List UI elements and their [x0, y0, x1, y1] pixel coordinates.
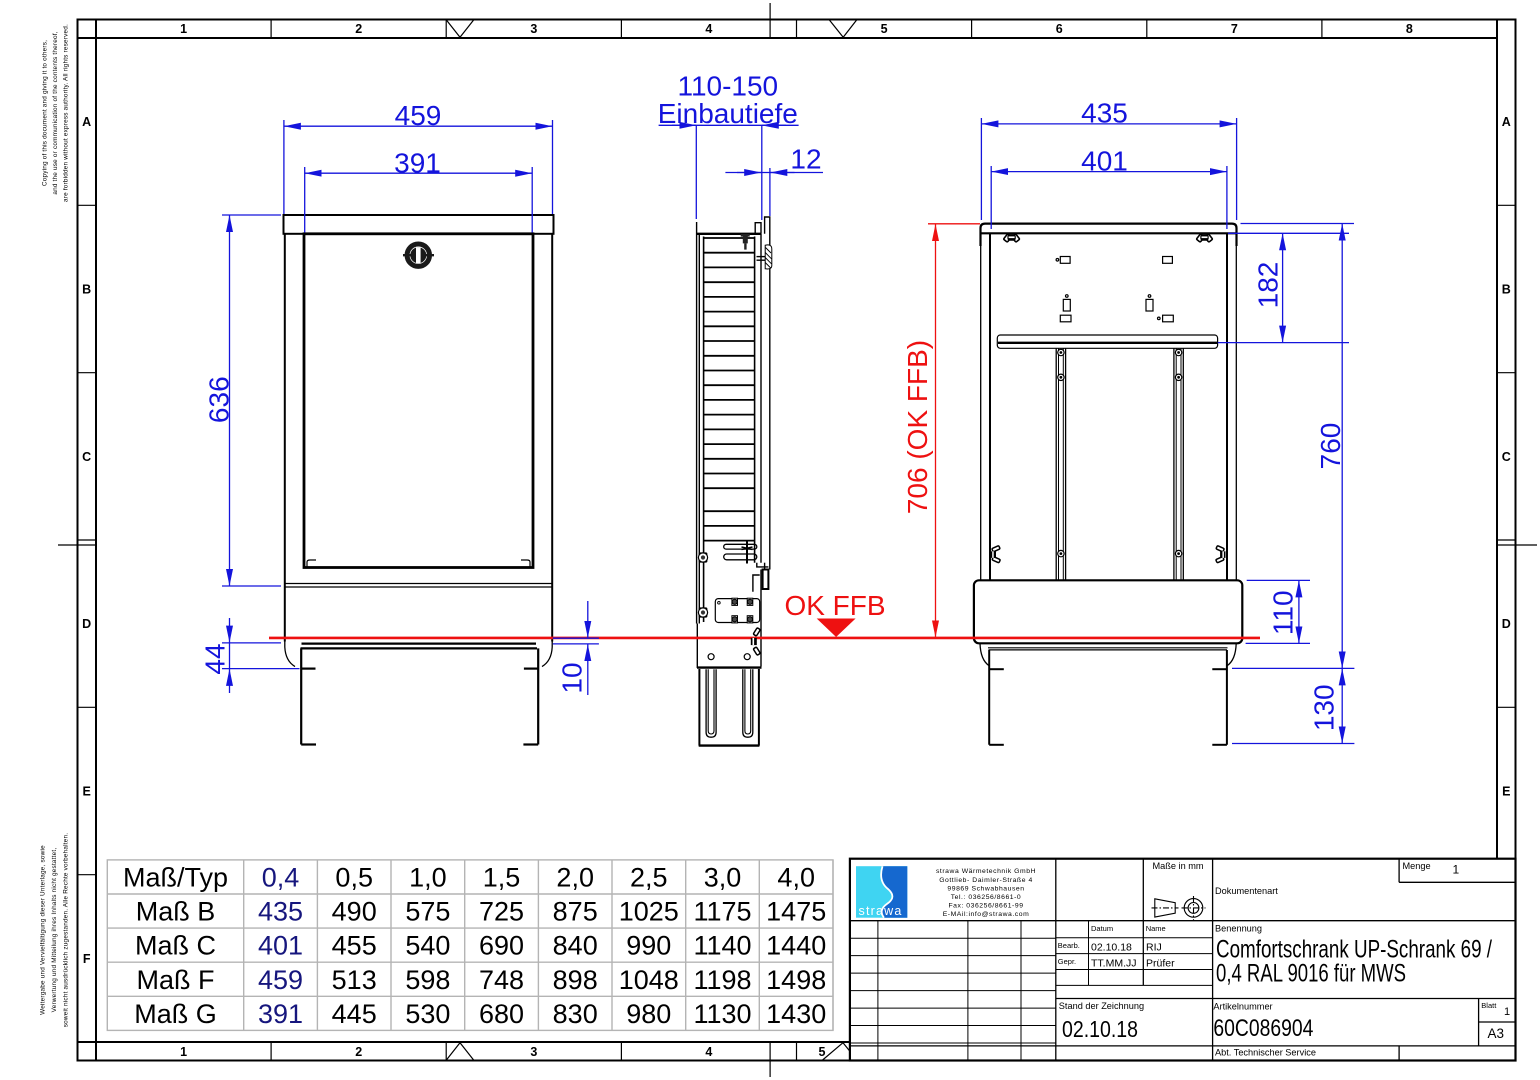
- svg-text:2,5: 2,5: [630, 863, 668, 893]
- svg-text:4: 4: [705, 22, 712, 36]
- svg-text:401: 401: [1081, 145, 1128, 176]
- svg-text:Artikelnummer: Artikelnummer: [1213, 1002, 1272, 1012]
- svg-text:1198: 1198: [693, 965, 751, 995]
- svg-text:980: 980: [626, 999, 671, 1029]
- svg-text:Fax: 036256/8661-99: Fax: 036256/8661-99: [948, 902, 1023, 909]
- svg-text:1475: 1475: [766, 897, 826, 927]
- svg-text:A: A: [1502, 115, 1511, 129]
- svg-text:130: 130: [1309, 684, 1340, 731]
- svg-text:Maß F: Maß F: [137, 965, 215, 995]
- svg-text:725: 725: [479, 897, 524, 927]
- svg-text:strawa: strawa: [859, 904, 903, 918]
- svg-text:A: A: [82, 115, 91, 129]
- svg-text:soweit nicht ausdrücklich zuge: soweit nicht ausdrücklich zugestanden. A…: [63, 833, 70, 1028]
- svg-text:680: 680: [479, 999, 524, 1029]
- svg-text:4: 4: [705, 1045, 712, 1059]
- svg-text:110: 110: [1268, 590, 1299, 635]
- svg-text:12: 12: [790, 144, 821, 175]
- svg-text:1430: 1430: [766, 999, 826, 1029]
- svg-text:5: 5: [881, 22, 888, 36]
- svg-text:and the use or communication o: and the use or communication of the cont…: [52, 31, 59, 194]
- svg-text:Stand der Zeichnung: Stand der Zeichnung: [1059, 1001, 1144, 1011]
- svg-text:110-150: 110-150: [677, 71, 778, 102]
- svg-text:C: C: [1502, 450, 1511, 464]
- svg-text:760: 760: [1315, 423, 1346, 470]
- svg-text:RIJ: RIJ: [1146, 942, 1162, 954]
- svg-text:1: 1: [1504, 1006, 1510, 1018]
- svg-text:748: 748: [479, 965, 524, 995]
- svg-text:540: 540: [405, 931, 450, 961]
- svg-text:1025: 1025: [619, 897, 679, 927]
- svg-text:44: 44: [200, 643, 231, 674]
- svg-text:Datum: Datum: [1091, 924, 1113, 933]
- svg-text:1,0: 1,0: [409, 863, 447, 893]
- svg-text:0,5: 0,5: [335, 863, 373, 893]
- svg-text:530: 530: [405, 999, 450, 1029]
- svg-text:TT.MM.JJ: TT.MM.JJ: [1091, 958, 1137, 970]
- svg-text:Dokumentenart: Dokumentenart: [1215, 886, 1278, 896]
- svg-text:490: 490: [332, 897, 377, 927]
- svg-text:F: F: [83, 952, 91, 966]
- svg-text:E-MAil:info@strawa.com: E-MAil:info@strawa.com: [943, 911, 1030, 918]
- svg-text:Maß C: Maß C: [135, 931, 216, 961]
- svg-text:1: 1: [180, 22, 187, 36]
- svg-text:Tel.: 036256/8661-0: Tel.: 036256/8661-0: [951, 894, 1022, 901]
- svg-text:Menge: Menge: [1403, 861, 1431, 871]
- svg-text:Copying of this document and g: Copying of this document and giving it t…: [42, 40, 49, 186]
- svg-text:6: 6: [1056, 22, 1063, 36]
- svg-text:strawa Wärmetechnik GmbH: strawa Wärmetechnik GmbH: [936, 868, 1036, 875]
- svg-text:840: 840: [553, 931, 598, 961]
- svg-text:Maße in mm: Maße in mm: [1153, 861, 1204, 871]
- svg-text:575: 575: [405, 897, 450, 927]
- svg-text:Maß B: Maß B: [136, 897, 216, 927]
- svg-text:3: 3: [530, 1045, 537, 1059]
- svg-text:Maß/Typ: Maß/Typ: [123, 863, 228, 893]
- svg-text:Gepr.: Gepr.: [1058, 957, 1076, 966]
- svg-text:Verwertung und Mitteilung ihre: Verwertung und Mitteilung ihres Inhalts …: [51, 848, 58, 1013]
- svg-text:Bearb.: Bearb.: [1058, 941, 1080, 950]
- svg-text:10: 10: [557, 662, 588, 693]
- svg-text:706 (OK FFB): 706 (OK FFB): [902, 340, 933, 514]
- svg-text:459: 459: [258, 965, 303, 995]
- svg-text:A3: A3: [1488, 1026, 1505, 1041]
- svg-text:875: 875: [553, 897, 598, 927]
- svg-text:598: 598: [405, 965, 450, 995]
- svg-text:0,4 RAL 9016 für MWS: 0,4 RAL 9016 für MWS: [1216, 959, 1406, 987]
- svg-text:1048: 1048: [619, 965, 679, 995]
- svg-text:C: C: [82, 450, 91, 464]
- svg-text:7: 7: [1231, 22, 1238, 36]
- svg-text:1: 1: [180, 1045, 187, 1059]
- svg-text:1130: 1130: [693, 999, 751, 1029]
- svg-text:1140: 1140: [693, 931, 751, 961]
- svg-text:B: B: [1502, 283, 1511, 297]
- svg-text:Weitergabe und Vervielfältigun: Weitergabe und Vervielfältigung dieser U…: [40, 845, 47, 1015]
- svg-text:Prüfer: Prüfer: [1146, 958, 1175, 970]
- svg-text:Einbautiefe: Einbautiefe: [658, 98, 798, 129]
- svg-text:182: 182: [1253, 262, 1284, 309]
- svg-text:401: 401: [258, 931, 303, 961]
- svg-text:Maß G: Maß G: [134, 999, 217, 1029]
- svg-text:D: D: [82, 617, 91, 631]
- svg-text:1,5: 1,5: [483, 863, 521, 893]
- svg-text:Blatt: Blatt: [1481, 1001, 1497, 1010]
- svg-text:are forbidden without express: are forbidden without express authority.…: [63, 24, 70, 202]
- svg-text:2: 2: [355, 22, 362, 36]
- svg-text:459: 459: [395, 100, 442, 131]
- svg-text:B: B: [82, 283, 91, 297]
- svg-text:2: 2: [355, 1045, 362, 1059]
- svg-text:3,0: 3,0: [704, 863, 742, 893]
- svg-text:1498: 1498: [766, 965, 826, 995]
- svg-text:Benennung: Benennung: [1215, 924, 1262, 934]
- svg-text:Name: Name: [1146, 924, 1166, 933]
- svg-text:4,0: 4,0: [777, 863, 815, 893]
- svg-text:02.10.18: 02.10.18: [1062, 1016, 1138, 1042]
- svg-text:830: 830: [553, 999, 598, 1029]
- svg-text:0,4: 0,4: [262, 863, 300, 893]
- svg-text:990: 990: [626, 931, 671, 961]
- svg-text:8: 8: [1406, 22, 1413, 36]
- svg-text:Abt. Technischer Service: Abt. Technischer Service: [1215, 1048, 1316, 1058]
- svg-text:391: 391: [394, 147, 441, 178]
- svg-text:2,0: 2,0: [556, 863, 594, 893]
- svg-text:99869 Schwabhausen: 99869 Schwabhausen: [947, 885, 1024, 892]
- svg-text:D: D: [1502, 617, 1511, 631]
- svg-text:1440: 1440: [766, 931, 826, 961]
- svg-text:60C086904: 60C086904: [1213, 1015, 1313, 1042]
- svg-text:OK FFB: OK FFB: [784, 590, 885, 621]
- svg-text:02.10.18: 02.10.18: [1091, 942, 1132, 954]
- svg-text:E: E: [1502, 785, 1510, 799]
- svg-text:636: 636: [204, 376, 235, 423]
- svg-text:435: 435: [258, 897, 303, 927]
- svg-text:898: 898: [553, 965, 598, 995]
- svg-text:Gottlieb- Daimler-Straße 4: Gottlieb- Daimler-Straße 4: [939, 877, 1033, 884]
- svg-text:435: 435: [1081, 98, 1128, 129]
- svg-text:445: 445: [332, 999, 377, 1029]
- svg-text:455: 455: [332, 931, 377, 961]
- svg-text:391: 391: [258, 999, 303, 1029]
- svg-text:513: 513: [332, 965, 377, 995]
- svg-text:690: 690: [479, 931, 524, 961]
- svg-text:1175: 1175: [693, 897, 751, 927]
- svg-text:E: E: [83, 785, 91, 799]
- svg-text:3: 3: [530, 22, 537, 36]
- svg-text:5: 5: [819, 1045, 826, 1059]
- svg-text:1: 1: [1453, 863, 1460, 877]
